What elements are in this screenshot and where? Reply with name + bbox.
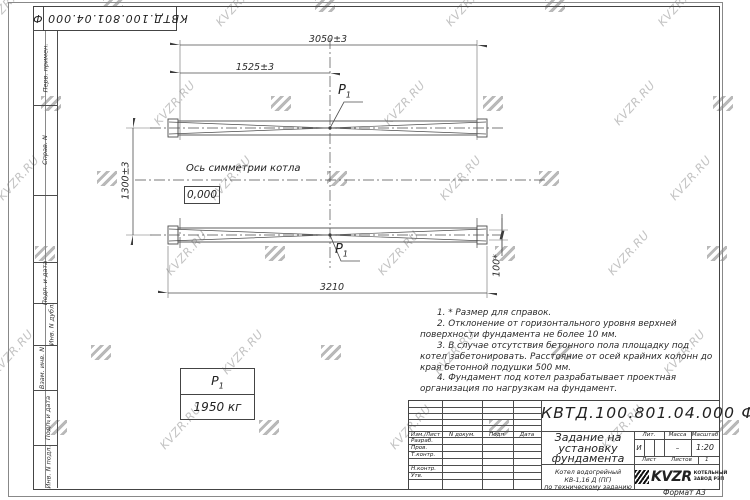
note-1: 1. * Размер для справок. [420, 308, 714, 319]
load-point-label-upper: P1 [338, 83, 351, 100]
lit-value: И [634, 444, 644, 452]
scale-header: Масштаб [691, 432, 719, 438]
col-header-izm-list: Изм./Лист [409, 432, 442, 438]
dim-1525: 1525±3 [215, 62, 295, 73]
level-mark-value: 0,000 [187, 189, 217, 201]
product-line-1: Котел водогрейный КВ-1,16 Д (ПГ) [543, 469, 633, 484]
company-name: КОТЕЛЬНЫЙ ЗАВОД РЭП [694, 471, 728, 482]
kvzr-logo-icon [635, 470, 649, 484]
note-3: 3. В случае отсутствия бетонного пола пл… [420, 341, 714, 374]
col-header-data: Дата [513, 432, 541, 438]
company-logo-cell: KVZR КОТЕЛЬНЫЙ ЗАВОД РЭП [635, 465, 719, 488]
row-prov: Пров. [411, 445, 427, 451]
notes-block: 1. * Размер для справок. 2. Отклонение о… [420, 308, 714, 395]
kvzr-logo-text: KVZR [651, 469, 692, 485]
titleblock-product: Котел водогрейный КВ-1,16 Д (ПГ) по техн… [543, 469, 633, 492]
note-4: 4. Фундамент под котел разрабатывает про… [420, 373, 714, 395]
title-block: КВТД.100.801.04.000 Ф Изм./Лист N докум.… [408, 400, 719, 489]
sheet-label: Лист [634, 457, 664, 463]
mass-header: Масса [664, 432, 691, 438]
level-mark-box: 0,000 [184, 186, 220, 204]
row-utv: Утв. [411, 473, 423, 479]
load-point-p: P [338, 83, 346, 98]
company-name-line1: КОТЕЛЬНЫЙ [694, 471, 728, 477]
dim-100: 100* [492, 246, 503, 286]
lit-header: Лит. [634, 432, 664, 438]
load-table-value: 1950 кг [194, 400, 242, 414]
load-table-value-cell: 1950 кг [181, 395, 254, 419]
load-table: P1 1950 кг [180, 368, 255, 420]
dim-3210: 3210 [292, 282, 372, 293]
row-nkontr: Н.контр. [411, 466, 436, 472]
col-header-podp: Подп. [482, 432, 513, 438]
load-point-sub: 1 [346, 91, 351, 100]
row-tkontr: Т.контр. [411, 452, 435, 458]
load-point-p: P [211, 373, 219, 388]
load-point-label-lower: P1 [335, 242, 348, 259]
row-razrab: Разраб. [411, 438, 433, 444]
sheets-label: Листов [671, 457, 692, 463]
load-point-sub: 1 [343, 250, 348, 259]
note-2: 2. Отклонение от горизонтального уровня … [420, 319, 714, 341]
titleblock-designation: КВТД.100.801.04.000 Ф [541, 404, 719, 422]
symmetry-axis-label: Ось симметрии котла [186, 163, 301, 174]
load-table-header: P1 [181, 369, 254, 395]
drawing-sheet: { "watermark": { "text": "KVZR.RU" }, "s… [0, 0, 750, 500]
corner-designation-text: КВТД.100.801.04.000 Ф [32, 12, 188, 25]
col-header-n-dokum: N докум. [442, 432, 482, 438]
load-table-p: P1 [211, 373, 224, 391]
product-line-2: по техническому заданию [543, 484, 633, 492]
titleblock-title: Задание на установку фундамента [545, 433, 631, 465]
format-note: Формат А3 [663, 488, 706, 497]
mass-value: – [664, 444, 691, 452]
load-point-p: P [335, 242, 343, 257]
sheets-value: 1 [705, 457, 709, 463]
dim-1300: 1300±3 [121, 141, 132, 221]
load-point-sub: 1 [219, 381, 224, 390]
company-name-line2: ЗАВОД РЭП [694, 477, 728, 483]
corner-designation-stamp: КВТД.100.801.04.000 Ф [43, 6, 177, 31]
dim-3050: 3050±3 [288, 34, 368, 45]
scale-value: 1:20 [691, 443, 719, 452]
